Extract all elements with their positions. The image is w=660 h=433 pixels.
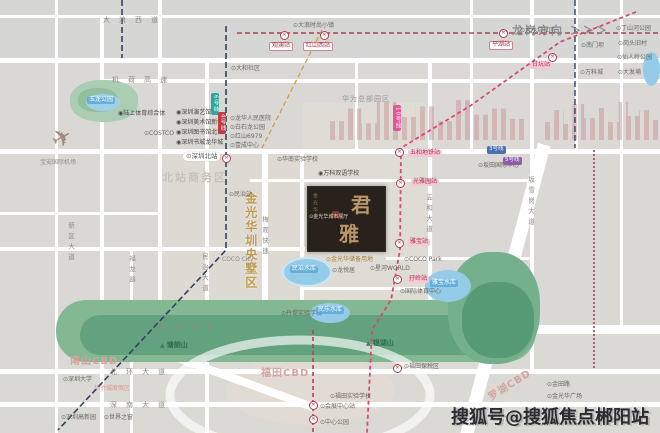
poi-land-sports-complex: ◉陆上体育综合体 [118,111,165,118]
reservoir-yabao: 雅宝水库 [430,280,458,287]
poi-minzhi-station: ⊙民治站 [229,192,252,199]
poi-dingshanhe-park: ⊙丁山河公园 [616,26,651,33]
metro-station-icon: ✕ [393,275,402,284]
poi-dafabu: ⊙大发埔 [618,70,641,77]
poi-futian-bonded: ⊙福田保税区 [404,364,439,371]
poi-huanan-school: ⊙华南实验学校 [277,157,318,164]
poi-longyueju: ⊙龙悦居 [332,268,355,275]
park-yulong: 玉龙公园 [87,97,115,104]
metro-station-icon: ✕ [395,239,404,248]
poi-showroom: ⊙金光华城市展厅 [309,215,348,221]
metro-station-icon: ✕ [393,364,402,373]
road-wuhe-av: 五和大道 [424,194,431,236]
mountain-yinhu: 银湖山 [366,339,394,348]
metro-station-icon: ✕ [280,31,289,40]
metro-station-icon: ✕ [222,154,231,163]
road-banxuegang-av: 坂雪岗大道 [526,176,533,229]
metro-station-icon: ✕ [309,415,318,424]
poi-coco-park: ⊙COCO Park [404,257,442,264]
poi-jintian-rd: ⊙金田路 [547,382,570,389]
road-shennan-av: 深南大道 [110,401,174,409]
station-tag-convention: ⊙会展中心站 [320,404,355,411]
poi-costco: ⊙COSTCO [144,131,174,138]
station-tag-guangyayuan: 光雅园站 [411,179,439,186]
poi-window-of-world: ⊙世界之窗 [104,415,133,422]
location-map: ✈ 龙岗方向 ＞＞＞ 金光华圳央墅区 金光华 君 雅 宝安国际机场大浪西道机荷高… [0,0,660,433]
station-tag-gankeng: 甘坑站 [530,62,552,69]
poi-baishilong-park: ⊙白石龙公园 [230,125,265,132]
poi-shenzhen-univ: ⊙深圳大学 [63,377,92,384]
mountain-tanglang: 塘朗山 [160,341,188,350]
road-jihe-expwy: 机荷高速 [112,76,176,84]
road-xinqu-av: 新区大道 [66,222,73,264]
metro-station-icon: ✕ [548,53,557,62]
poi-dashuikeng: ⊙大水坑社区 [520,28,555,35]
poi-gangtou-village: ⊙岗头旧村 [618,41,647,48]
metro-line-badge: 5号线 [503,157,522,165]
road-minzhi-av: 民治大道 [200,253,207,295]
poi-xianrenling-park: ⊙仙人岭公园 [617,55,652,62]
poi-wankecheng: ⊙万科城 [580,70,603,77]
metro-station-icon: ✕ [395,148,404,157]
poi-intl-sports-center: ⊙国际体育中心 [400,289,441,296]
metro-line-badge: 6号线 [211,93,219,115]
venue-yanyi-hall: ◉深圳演艺馆 [176,110,211,117]
station-tag-shenzhenbei: ⊙深圳北站 [183,152,220,161]
poi-hi-tech-park: ⊙深圳高新园 [61,415,96,422]
area-beizhan-cbd: 北站商务区 [162,172,227,185]
road-meiguan-expwy: 梅观快速 [260,216,267,258]
poi-nanmenba: ⊙南门坝 [581,43,604,50]
road-dalangxidao: 大浪西道 [103,16,167,24]
poi-futian-school: ⊙福田实验学校 [330,394,371,401]
poi-xinghe-world: ⊙星河WORLD [370,266,410,273]
metro-station-icon: ✕ [499,29,508,38]
station-tag-yabao: 雅宝站 [408,239,430,246]
label-layer: 宝安国际机场大浪西道机荷高速⊙大浪时尚小镇⊙大和社区观澜站红山西站平湖站甘坑站⊙… [0,0,660,433]
poi-hongshan6979: ⊙红山6979 [230,134,262,141]
metro-line-badge: 10号线 [393,105,401,131]
watermark: 搜狐号@搜狐焦点郴阳站 [451,403,649,429]
poi-jgh-reserved-land: ⊙金光华储备用地 [326,257,373,264]
station-tag-hongshanxi: 红山西站 [303,42,333,51]
road-beihuan-av: 北环大道 [110,368,174,376]
road-fulong: 福龙路 [127,255,134,287]
metro-station-icon: ✕ [320,31,329,40]
poi-wanke-school: ◉万科双语学校 [318,171,359,178]
poi-oct: 华侨城度假区 [94,386,130,393]
venue-book-city: ◉深圳书城龙华城 [176,140,223,147]
metro-station-icon: ✕ [309,401,318,410]
venue-art-museum: ◉深圳美术馆新馆 [176,120,223,127]
huawei-hq-label: 华为总部园区 [342,95,390,103]
metro-line-badge: 3号线 [487,146,506,154]
airport-label: 宝安国际机场 [40,160,76,167]
metro-line-badge: 4号线 [218,112,226,134]
road-nanping-expwy: 南坪快速 [158,323,222,331]
reservoir-minle: 民乐水库 [316,307,344,314]
metro-station-icon: ✕ [396,179,405,188]
area-nanshan-cbd: 南山CBD [70,356,118,368]
station-tag-guanlan: 观澜站 [269,42,293,51]
poi-coco-city: COCO City [222,257,254,264]
station-tag-wuhe: 五和地铁站 [408,150,442,157]
poi-longhua-hospital: ⊙龙华人民医院 [230,116,271,123]
poi-dalang-fashion-town: ⊙大浪时尚小镇 [293,23,334,30]
poi-dahe-village: ⊙大和社区 [231,66,260,73]
poi-center-park: ⊙中心公园 [320,420,349,427]
station-tag-maling: 孖岭站 [407,276,429,283]
area-luohu-cbd: 罗湖CBD [487,368,534,403]
area-futian-cbd: 福田CBD [261,368,309,380]
poi-yicheng-center: ⊙壹成中心 [230,143,259,150]
reservoir-minzhi: 民治水库 [290,266,318,273]
venue-library-north: ◉深圳图书馆北馆 [176,130,223,137]
poi-jgh-plaza: ⊙金光华广场 [547,394,582,401]
station-tag-pinghu: 平湖站 [489,41,513,50]
